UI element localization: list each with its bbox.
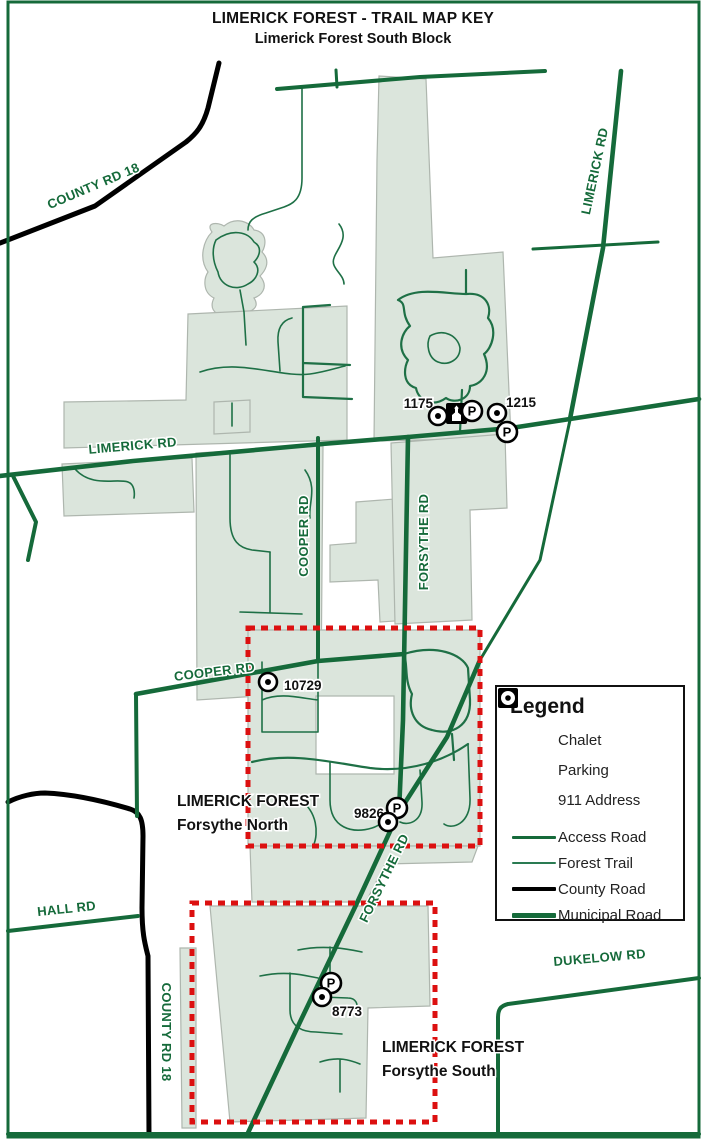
911-address-icon [429,407,447,425]
legend-label: Chalet [558,732,601,749]
municipal-road-line-icon [510,913,558,918]
legend-label: Access Road [558,829,646,846]
legend-label: 911 Address [558,792,640,809]
forsythe-rd-vertical-label: FORSYTHE RD [416,494,431,590]
hall-rd-label: HALL RD [36,898,96,919]
911-address-icon [259,673,277,691]
address-10729: 10729 [284,678,322,693]
cooper-rd-bend-road [136,694,137,816]
cooper-rd-vertical-label: COOPER RD [296,495,311,576]
map-canvas: COUNTY RD 18 LIMERICK RD LIMERICK RD COO… [0,0,706,1144]
address-1175: 1175 [404,396,434,411]
county-rd-18-northwest [0,63,219,243]
legend-title: Legend [510,695,683,719]
forest-trail-line-icon [510,862,558,864]
forsythe-north-label-line2: Forsythe North [177,817,288,834]
911-address-icon [379,813,397,831]
svg-text:P: P [468,404,477,419]
trail-map: COUNTY RD 18 LIMERICK RD LIMERICK RD COO… [0,0,706,1144]
dukelow-rd-road [498,978,699,1135]
legend-item-county-road: County Road [497,876,683,902]
forsythe-south-label-line1: LIMERICK FOREST [382,1039,525,1056]
forest-parcel-forsythe-south [210,906,430,1122]
legend-label: County Road [558,881,646,898]
legend-label: Parking [558,762,609,779]
parking-icon: P [497,422,517,442]
map-title-line2: Limerick Forest South Block [255,31,453,47]
access-road-spur [533,242,658,249]
911-address-icon [313,988,331,1006]
legend-item-chalet: Chalet [497,725,683,755]
address-1215: 1215 [506,395,537,410]
legend-panel: Legend Chalet P Parking [495,685,685,921]
legend-item-municipal-road: Municipal Road [497,902,683,928]
svg-text:P: P [393,801,402,816]
hall-rd-road [8,916,138,931]
forsythe-south-label-line2: Forsythe South [382,1063,496,1080]
legend-label: Municipal Road [558,907,661,924]
svg-text:P: P [503,425,512,440]
forest-parcels [62,76,511,1128]
county-road-line-icon [510,887,558,892]
access-road-line-icon [510,836,558,839]
legend-item-911-address: 911 Address [497,785,683,815]
legend-label: Forest Trail [558,855,633,872]
legend-item-access-road: Access Road [497,824,683,850]
address-8773: 8773 [332,1004,363,1019]
legend-item-parking: P Parking [497,755,683,785]
map-title-line1: LIMERICK FOREST - TRAIL MAP KEY [212,10,495,27]
forest-parcel [64,306,347,448]
map-title: LIMERICK FOREST - TRAIL MAP KEY Limerick… [212,10,495,47]
legend-item-forest-trail: Forest Trail [497,850,683,876]
parking-icon: P [462,401,482,421]
dukelow-rd-label: DUKELOW RD [553,946,647,969]
county-rd-18-south [8,793,149,1136]
svg-text:P: P [327,976,336,991]
911-address-icon [488,404,506,422]
forest-parcel [374,76,511,441]
forest-parcel [250,846,478,902]
forsythe-north-label-line1: LIMERICK FOREST [177,793,320,810]
limerick-rd-west-fork [13,476,36,560]
county-rd-18-south-label: COUNTY RD 18 [159,983,174,1082]
